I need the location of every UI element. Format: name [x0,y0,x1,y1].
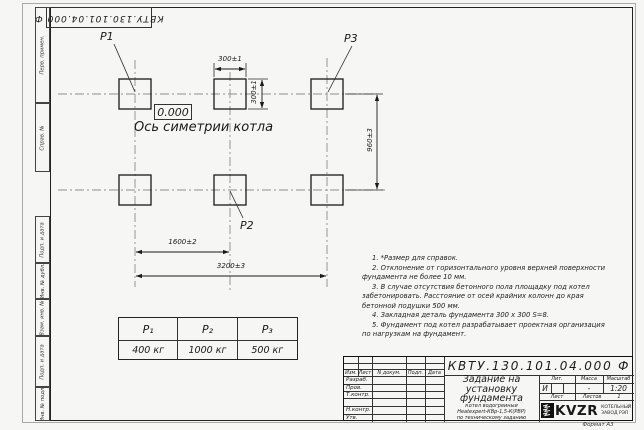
level-mark-box: 0.000 [154,104,192,120]
tb-sheets-label: Листов [577,393,607,400]
note-2: 2. Отклонение от горизонтального уровня … [362,264,614,283]
tb-scale-label: Масштаб [603,375,634,383]
tb-row-blank [344,398,374,406]
margin-box-podp-data-1: Подп. и дата [35,216,50,263]
company-subtitle: КОТЕЛЬНЫЙ ЗАВОД РЭП [601,405,631,416]
tb-col-dokum: N докум. [372,369,406,376]
tb-doc-title: Задание на установку фундамента [444,375,539,404]
dim-pad-height: 300±1 [250,76,258,108]
tb-sheets-value: 1 [612,393,626,400]
tb-mass-value: - [575,383,603,393]
dim-row-spacing: 960±3 [366,122,374,158]
boiler-symmetry-axis-caption: Ось симетрии котла [134,120,273,135]
load-table-value-p1: 400 кг [119,341,178,359]
technical-notes: 1. *Размер для справок. 2. Отклонение от… [362,254,614,340]
note-3: 3. В случае отсутствия бетонного пола пл… [362,283,614,312]
tb-row-tkontr: Т.контр. [344,391,374,398]
tb-row-prov: Пров. [344,384,374,391]
load-table-value-p3: 500 кг [238,341,297,359]
tb-row-razrab: Разраб. [344,376,374,384]
level-mark-value: 0.000 [157,106,189,119]
kvzr-logo-icon [541,403,554,418]
corner-designation-box: КВТУ.130.101.04.000 Ф [46,7,152,28]
format-label: Формат А3 [538,422,644,428]
margin-box-inv-dubl: Инв. № дубл. [35,263,50,299]
margin-box-podp-data-2: Подп. и дата [35,336,50,387]
title-block: Изм. Лист N докум. Подп. Дата Разраб. Пр… [343,356,633,421]
company-name: KVZR [555,403,598,419]
dim-pad-width: 300±1 [214,55,246,63]
corner-designation-text: КВТУ.130.101.04.000 Ф [34,13,164,23]
tb-scale-value: 1:20 [603,383,634,393]
margin-box-sprav-n: Справ. № [35,103,50,172]
tb-col-podp: Подп. [406,369,425,376]
tb-product: Котел водогрейный Heatexpert-КВр-1,5-К(Р… [444,404,539,422]
note-4: 4. Закладная деталь фундамента 300 х 300… [362,311,614,321]
note-5: 5. Фундамент под котел разрабатывает про… [362,321,614,340]
tb-designation: КВТУ.130.101.04.000 Ф [444,357,634,375]
company-logo: KVZR КОТЕЛЬНЫЙ ЗАВОД РЭП [541,401,632,420]
note-1: 1. *Размер для справок. [362,254,614,264]
tb-row-nkontr: Н.контр. [344,406,374,414]
tb-row-utv: Утв. [344,414,374,422]
dim-col-spacing-full: 3200±3 [208,262,254,270]
load-table-value-p2: 1000 кг [178,341,237,359]
load-table-header-p1: P₁ [119,318,178,341]
tb-sheet-label: Лист [539,393,575,400]
load-table-header-p2: P₂ [178,318,237,341]
dim-col-spacing-half: 1600±2 [160,238,205,246]
tb-mass-label: Масса [575,375,603,383]
drawing-sheet: КВТУ.130.101.04.000 Ф Перв. примен. Спра… [0,0,644,430]
tb-col-data: Дата [425,369,444,376]
tb-lit-label: Лит. [539,375,575,383]
pad-label-p3: P3 [344,32,358,45]
pad-label-p2: P2 [240,219,254,232]
load-table-header-p3: P₃ [238,318,297,341]
tb-col-izm: Изм. [344,369,358,376]
pad-label-p1: P1 [100,30,114,43]
load-table: P₁ P₂ P₃ 400 кг 1000 кг 500 кг [118,317,298,360]
margin-box-inv-podl: Инв. № подл. [35,387,50,421]
tb-col-list: Лист [358,369,372,376]
margin-box-perv-primen: Перв. примен. [35,7,50,103]
margin-box-vzam-inv: Взам. инв. № [35,299,50,336]
tb-lit-value: И [539,383,551,393]
